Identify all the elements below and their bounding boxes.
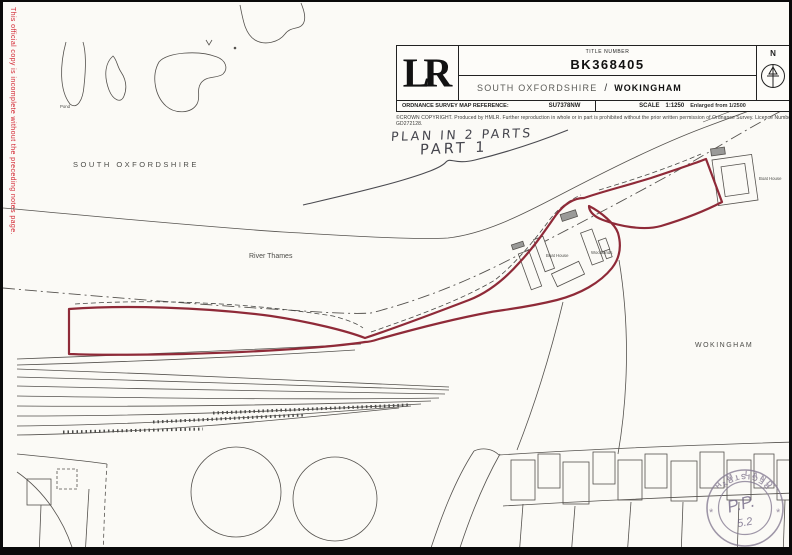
bench-mark [206, 40, 212, 45]
borough-name: WOKINGHAM [614, 83, 682, 93]
island-outline [62, 42, 86, 106]
island-outline [106, 56, 126, 100]
scale-note: Enlarged from 1/2500 [690, 103, 746, 109]
os-reference-value: SU7378NW [549, 103, 581, 109]
os-reference-row: ORDNANCE SURVEY MAP REFERENCE: SU7378NW … [397, 100, 789, 111]
survey-dot [234, 47, 236, 49]
road-curve [428, 451, 474, 555]
district-separator: / [604, 83, 607, 94]
official-copy-warning: This official copy is incomplete without… [4, 7, 16, 277]
stamp-star-right: * [776, 507, 781, 519]
left-plots [17, 454, 107, 555]
boathouse-building-ne [711, 147, 758, 205]
district-cell: SOUTH OXFORDSHIRE / WOKINGHAM [459, 76, 756, 100]
stamp-star-left: * [709, 507, 714, 519]
field-boundary [517, 302, 563, 450]
hm-land-registry-logo: LR [397, 46, 459, 100]
building-label: Woodlands [591, 250, 612, 255]
crown-copyright-line: ©CROWN COPYRIGHT. Produced by HMLR. Furt… [396, 115, 792, 127]
scale-label: SCALE [639, 103, 659, 109]
gas-holder-circle [293, 457, 377, 541]
north-arrow-icon [759, 58, 787, 94]
scale-cell: SCALE 1:1250 Enlarged from 1/2500 [595, 101, 789, 111]
north-label: N [770, 49, 776, 58]
county-left-label: SOUTH OXFORDSHIRE [73, 160, 199, 169]
road-curve [474, 449, 499, 455]
land-registry-stamp: H.M. LAND REGISTRY * * P.P. 5.2 [707, 469, 783, 546]
field-boundary [618, 260, 626, 454]
title-number-cell: TITLE NUMBER BK368405 [459, 46, 756, 76]
os-reference-cell: ORDNANCE SURVEY MAP REFERENCE: SU7378NW [397, 103, 595, 109]
district-name: SOUTH OXFORDSHIRE [477, 83, 597, 93]
title-number-label: TITLE NUMBER [586, 49, 630, 55]
scale-value: 1:1250 [666, 103, 685, 109]
pond-label: Pond [60, 104, 71, 109]
stamp-number: 5.2 [736, 516, 753, 530]
lr-logo-icon: LR [403, 53, 453, 94]
island-outline [240, 3, 305, 43]
title-number-value: BK368405 [570, 57, 644, 72]
registered-title-boundary [69, 159, 722, 355]
boat-house-label: Boat House [546, 253, 569, 258]
borough-right-label: WOKINGHAM [695, 342, 753, 349]
north-point-cell: N [756, 46, 789, 100]
os-reference-label: ORDNANCE SURVEY MAP REFERENCE: [402, 103, 509, 109]
title-plan-page: SOUTH OXFORDSHIRE River Thames WOKINGHAM… [0, 0, 792, 555]
boat-house-ne-label: Boat House [759, 176, 782, 181]
railway-tracks [17, 369, 449, 435]
island-outline [155, 53, 226, 112]
gas-holder-circle [191, 447, 281, 537]
river-thames-label: River Thames [249, 253, 293, 260]
title-header-box: LR TITLE NUMBER BK368405 N SOUTH OXFORDS… [396, 45, 790, 112]
part-number-note: PART 1 [420, 140, 488, 159]
